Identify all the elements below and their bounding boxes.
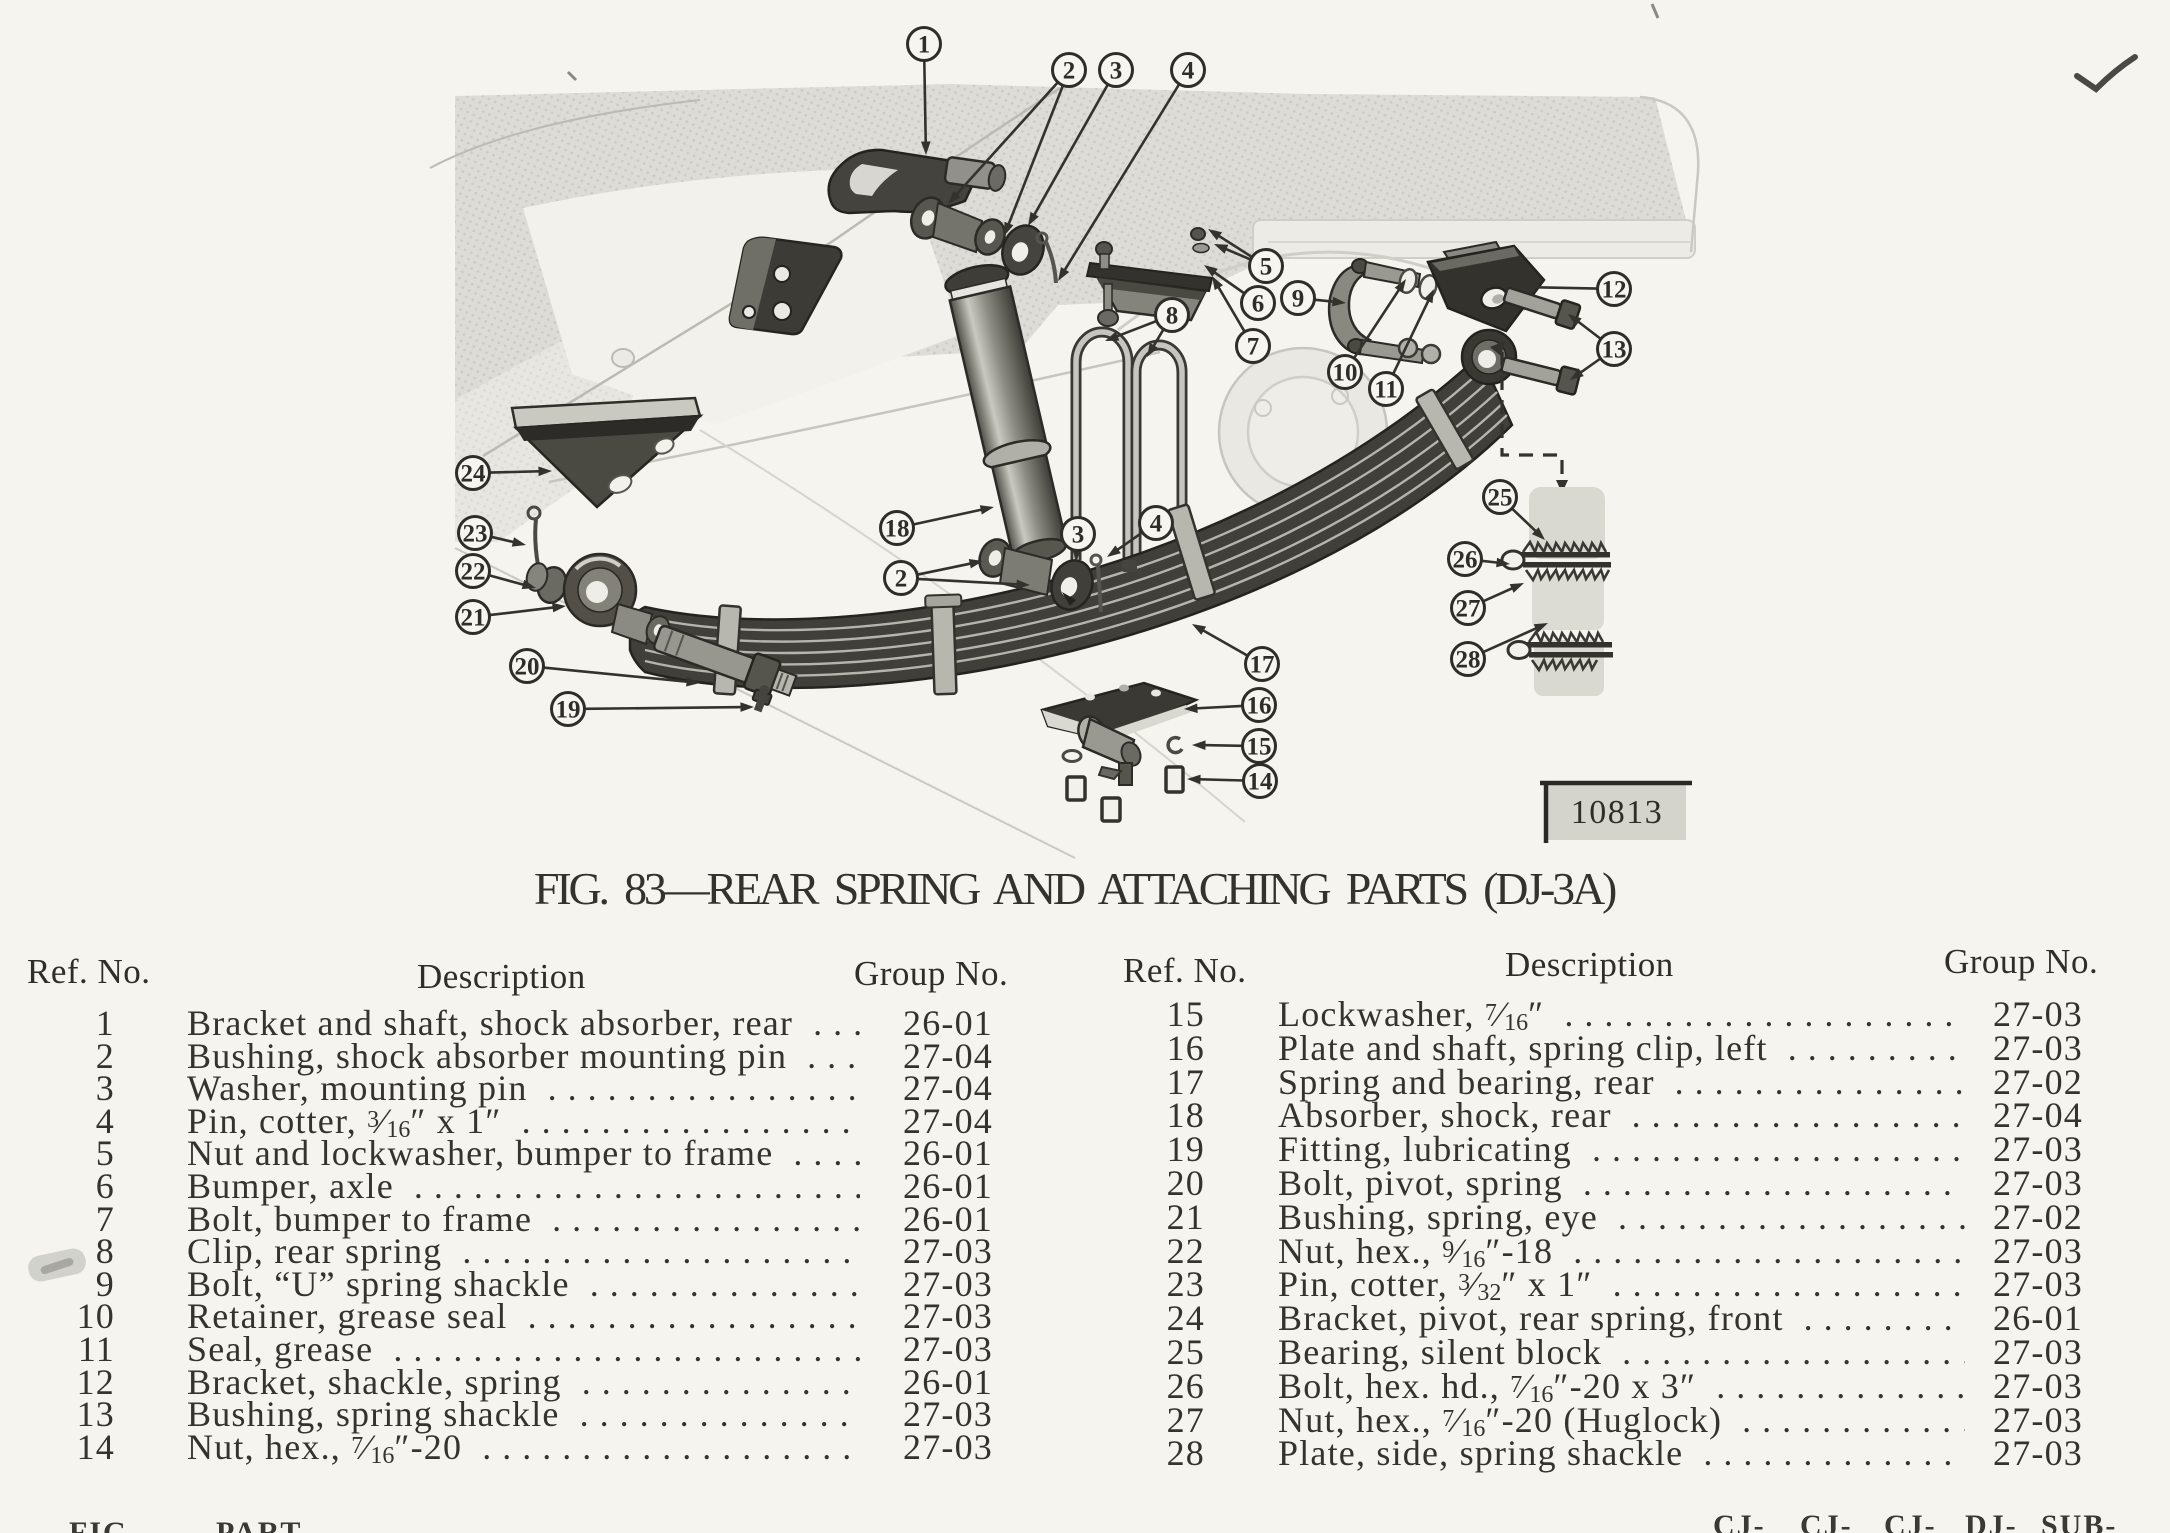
svg-text:24: 24 [461,461,487,488]
svg-text:25: 25 [1488,485,1513,512]
svg-text:22: 22 [461,559,486,586]
svg-text:4: 4 [1182,58,1195,85]
svg-text:21: 21 [461,605,486,632]
svg-text:7: 7 [1247,334,1260,361]
svg-text:1: 1 [918,32,931,59]
svg-text:12: 12 [1602,277,1627,304]
svg-text:14: 14 [1248,769,1274,796]
svg-text:10813: 10813 [1571,794,1664,831]
svg-text:2: 2 [895,566,908,593]
svg-text:17: 17 [1250,652,1275,679]
svg-text:3: 3 [1072,522,1085,549]
svg-text:8: 8 [1166,303,1179,330]
svg-text:2: 2 [1063,58,1076,85]
svg-text:15: 15 [1247,734,1272,761]
svg-text:10: 10 [1333,360,1358,387]
svg-text:6: 6 [1252,291,1265,318]
svg-text:28: 28 [1456,647,1481,674]
svg-text:13: 13 [1602,337,1627,364]
svg-text:20: 20 [515,654,540,681]
svg-text:16: 16 [1247,693,1272,720]
svg-text:19: 19 [556,697,581,724]
svg-text:18: 18 [885,516,910,543]
svg-text:27: 27 [1456,596,1481,623]
svg-text:3: 3 [1110,58,1123,85]
svg-text:11: 11 [1374,377,1398,404]
svg-text:5: 5 [1260,254,1273,281]
svg-text:4: 4 [1150,511,1163,538]
svg-text:26: 26 [1453,547,1478,574]
svg-text:9: 9 [1292,286,1305,313]
svg-text:23: 23 [463,521,488,548]
